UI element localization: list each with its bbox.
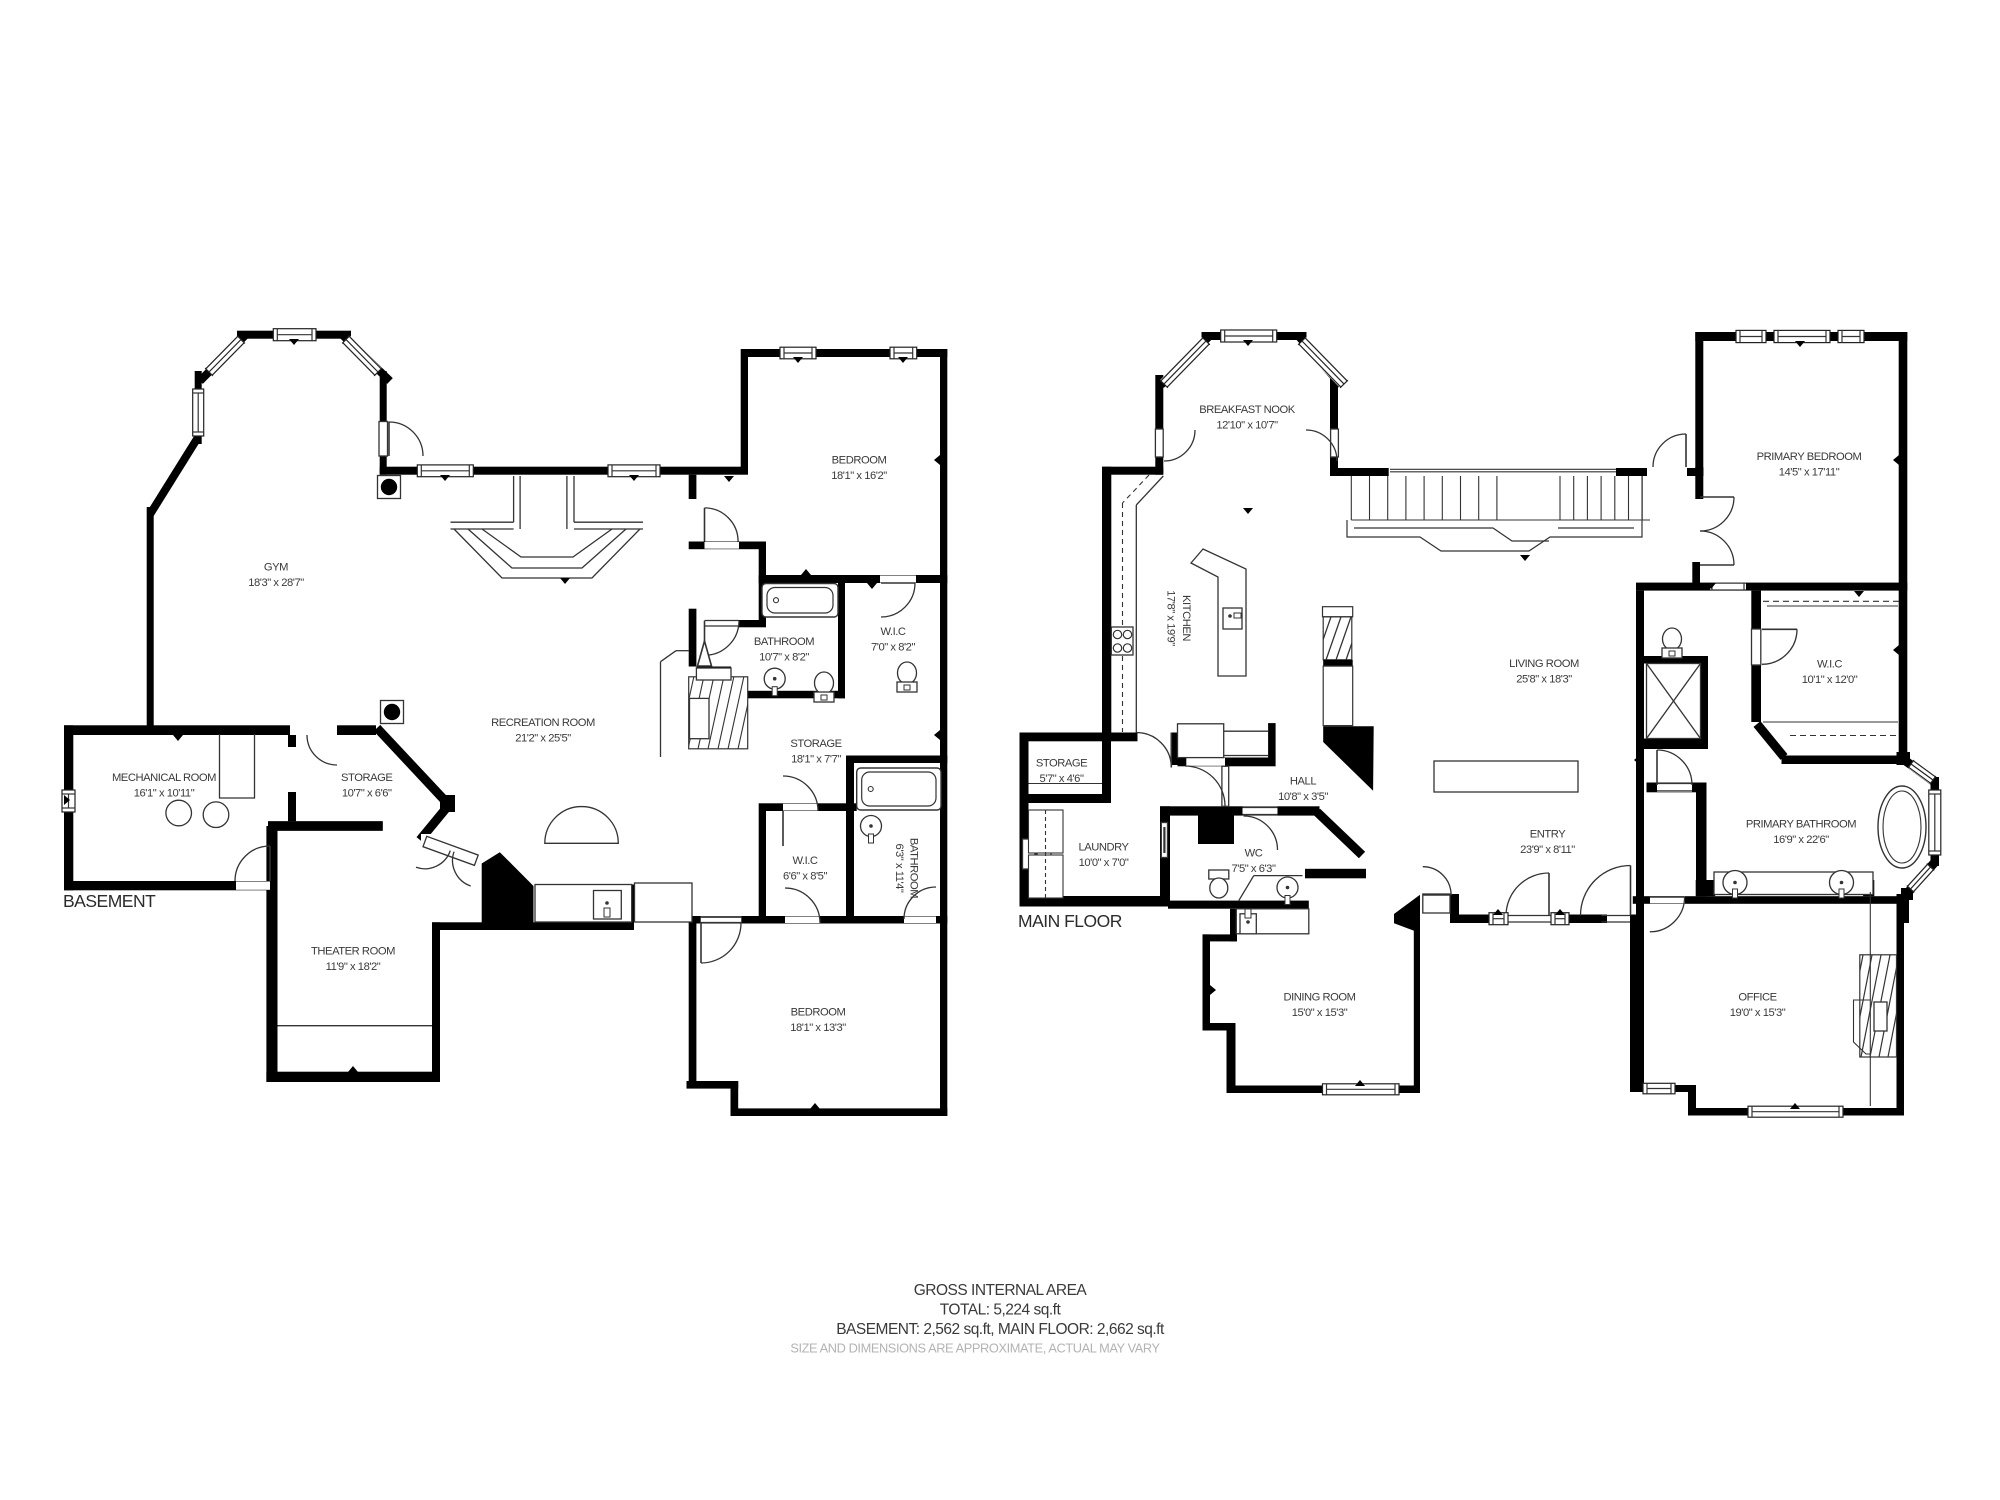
svg-text:STORAGE: STORAGE xyxy=(790,738,841,750)
svg-text:BATHROOM: BATHROOM xyxy=(754,636,814,648)
svg-text:10'8" x 3'5": 10'8" x 3'5" xyxy=(1278,791,1328,803)
svg-text:17'8" x 19'9": 17'8" x 19'9" xyxy=(1165,590,1177,646)
svg-text:STORAGE: STORAGE xyxy=(1036,758,1087,770)
svg-text:10'0" x 7'0": 10'0" x 7'0" xyxy=(1079,857,1129,869)
svg-text:16'9" x 22'6": 16'9" x 22'6" xyxy=(1773,834,1829,846)
svg-text:BASEMENT: 2,562 sq.ft, MAIN FL: BASEMENT: 2,562 sq.ft, MAIN FLOOR: 2,662… xyxy=(836,1321,1165,1338)
svg-text:STORAGE: STORAGE xyxy=(341,772,392,784)
svg-text:18'1" x 7'7": 18'1" x 7'7" xyxy=(791,754,841,766)
svg-text:LIVING ROOM: LIVING ROOM xyxy=(1509,658,1579,670)
svg-text:BEDROOM: BEDROOM xyxy=(832,455,887,467)
svg-text:BREAKFAST NOOK: BREAKFAST NOOK xyxy=(1199,404,1295,416)
svg-text:16'1" x 10'11": 16'1" x 10'11" xyxy=(134,788,195,800)
svg-text:15'0" x 15'3": 15'0" x 15'3" xyxy=(1292,1007,1348,1019)
svg-text:21'2" x 25'5": 21'2" x 25'5" xyxy=(515,733,571,745)
svg-text:10'7" x 6'6": 10'7" x 6'6" xyxy=(342,788,392,800)
svg-text:KITCHEN: KITCHEN xyxy=(1180,595,1192,641)
svg-text:BATHROOM: BATHROOM xyxy=(908,838,920,898)
svg-text:TOTAL: 5,224 sq.ft: TOTAL: 5,224 sq.ft xyxy=(940,1302,1062,1319)
svg-text:5'7" x 4'6": 5'7" x 4'6" xyxy=(1040,773,1084,785)
svg-text:6'6" x 8'5": 6'6" x 8'5" xyxy=(783,871,827,883)
svg-text:WC: WC xyxy=(1245,848,1263,860)
svg-text:PRIMARY BEDROOM: PRIMARY BEDROOM xyxy=(1757,451,1862,463)
svg-text:12'10" x 10'7": 12'10" x 10'7" xyxy=(1216,420,1278,432)
svg-text:RECREATION ROOM: RECREATION ROOM xyxy=(491,717,595,729)
svg-text:PRIMARY BATHROOM: PRIMARY BATHROOM xyxy=(1746,819,1856,831)
svg-text:MAIN FLOOR: MAIN FLOOR xyxy=(1018,911,1122,931)
svg-text:OFFICE: OFFICE xyxy=(1738,992,1776,1004)
svg-text:W.I.C: W.I.C xyxy=(792,855,817,867)
svg-text:18'1" x 16'2": 18'1" x 16'2" xyxy=(831,470,887,482)
svg-text:MECHANICAL ROOM: MECHANICAL ROOM xyxy=(112,772,216,784)
svg-text:ENTRY: ENTRY xyxy=(1530,829,1566,841)
svg-text:23'9" x 8'11": 23'9" x 8'11" xyxy=(1520,844,1575,856)
svg-text:GYM: GYM xyxy=(264,562,288,574)
svg-text:7'0" x 8'2": 7'0" x 8'2" xyxy=(871,642,915,654)
svg-text:W.I.C: W.I.C xyxy=(1817,659,1842,671)
svg-text:THEATER ROOM: THEATER ROOM xyxy=(311,946,395,958)
svg-text:14'5" x 17'11": 14'5" x 17'11" xyxy=(1779,467,1840,479)
svg-text:DINING ROOM: DINING ROOM xyxy=(1283,992,1355,1004)
svg-text:HALL: HALL xyxy=(1290,776,1316,788)
svg-text:10'1" x 12'0": 10'1" x 12'0" xyxy=(1802,674,1858,686)
svg-text:BEDROOM: BEDROOM xyxy=(791,1007,846,1019)
svg-text:6'3" x 11'4": 6'3" x 11'4" xyxy=(893,844,905,893)
svg-text:7'5" x 6'3": 7'5" x 6'3" xyxy=(1232,863,1276,875)
svg-text:19'0" x 15'3": 19'0" x 15'3" xyxy=(1730,1007,1786,1019)
svg-text:18'3" x 28'7": 18'3" x 28'7" xyxy=(248,577,304,589)
svg-text:GROSS INTERNAL AREA: GROSS INTERNAL AREA xyxy=(914,1282,1088,1299)
svg-text:10'7" x 8'2": 10'7" x 8'2" xyxy=(759,652,809,664)
svg-text:LAUNDRY: LAUNDRY xyxy=(1078,842,1129,854)
svg-text:25'8" x 18'3": 25'8" x 18'3" xyxy=(1516,674,1572,686)
svg-text:BASEMENT: BASEMENT xyxy=(63,891,156,911)
svg-text:11'9" x 18'2": 11'9" x 18'2" xyxy=(326,961,381,973)
svg-text:18'1" x 13'3": 18'1" x 13'3" xyxy=(790,1022,846,1034)
svg-text:W.I.C: W.I.C xyxy=(880,626,905,638)
svg-text:SIZE AND DIMENSIONS ARE APPROX: SIZE AND DIMENSIONS ARE APPROXIMATE, ACT… xyxy=(790,1341,1160,1356)
